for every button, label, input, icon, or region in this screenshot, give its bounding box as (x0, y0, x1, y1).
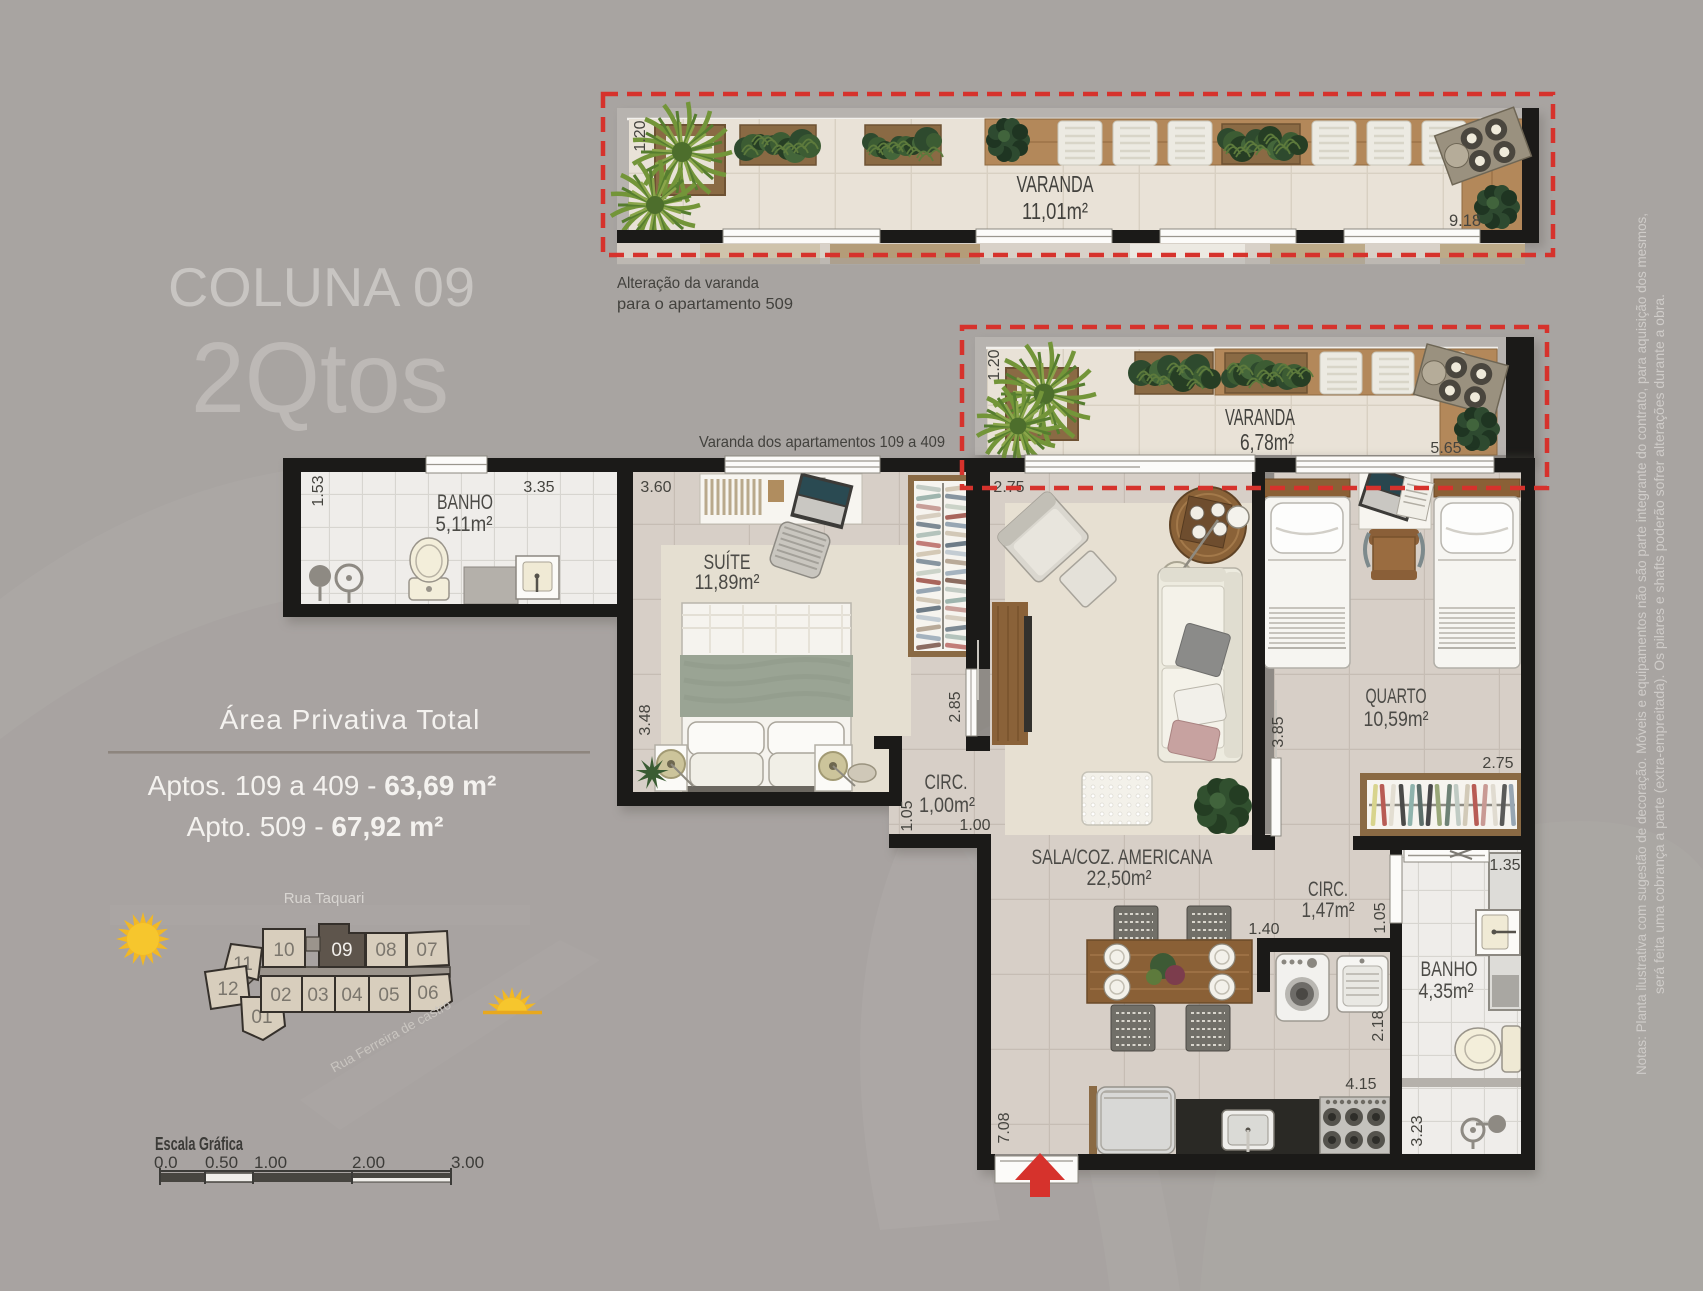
svg-text:Apto. 509 - 67,92 m²: Apto. 509 - 67,92 m² (187, 811, 444, 842)
svg-text:1.05: 1.05 (1372, 902, 1389, 933)
svg-text:1.05: 1.05 (899, 800, 916, 831)
svg-text:Alteração da varanda: Alteração da varanda (617, 275, 759, 292)
svg-text:4.15: 4.15 (1345, 1076, 1376, 1093)
svg-text:3.00: 3.00 (451, 1153, 484, 1172)
svg-text:Rua Taquari: Rua Taquari (284, 890, 365, 907)
svg-text:09: 09 (331, 940, 352, 961)
svg-text:1.35: 1.35 (1489, 857, 1520, 874)
svg-text:QUARTO: QUARTO (1366, 685, 1427, 708)
svg-text:07: 07 (416, 940, 437, 961)
svg-text:SALA/COZ. AMERICANA: SALA/COZ. AMERICANA (1032, 846, 1213, 869)
svg-text:1.20: 1.20 (632, 120, 649, 151)
svg-text:3.48: 3.48 (637, 704, 654, 735)
svg-text:0.0: 0.0 (154, 1153, 178, 1172)
svg-text:Área Privativa Total: Área Privativa Total (220, 704, 481, 735)
svg-text:1,00m²: 1,00m² (919, 794, 975, 817)
svg-text:2.18: 2.18 (1370, 1010, 1387, 1041)
svg-text:05: 05 (378, 985, 399, 1006)
svg-text:CIRC.: CIRC. (1308, 878, 1348, 901)
svg-text:3.23: 3.23 (1409, 1115, 1426, 1146)
svg-text:BANHO: BANHO (437, 491, 493, 514)
svg-text:VARANDA: VARANDA (1017, 171, 1094, 197)
svg-text:Escala Gráfica: Escala Gráfica (155, 1134, 244, 1154)
svg-text:1.40: 1.40 (1248, 921, 1279, 938)
svg-text:2.85: 2.85 (947, 691, 964, 722)
svg-text:será feita uma cobrança a part: será feita uma cobrança a parte (extra-e… (1651, 294, 1667, 994)
svg-text:6,78m²: 6,78m² (1240, 429, 1294, 455)
svg-text:3.60: 3.60 (640, 479, 671, 496)
svg-text:03: 03 (307, 985, 328, 1006)
svg-text:5.65: 5.65 (1430, 440, 1461, 457)
svg-text:12: 12 (217, 979, 238, 1000)
svg-text:04: 04 (341, 985, 363, 1006)
svg-text:0.50: 0.50 (205, 1153, 238, 1172)
svg-text:COLUNA 09: COLUNA 09 (168, 256, 475, 318)
svg-text:08: 08 (375, 940, 396, 961)
svg-text:3.85: 3.85 (1270, 716, 1287, 747)
svg-text:Notas: Planta ilustrativa com: Notas: Planta ilustrativa com sugestão d… (1633, 213, 1649, 1075)
svg-text:06: 06 (417, 983, 438, 1004)
svg-text:CIRC.: CIRC. (925, 771, 968, 794)
svg-text:02: 02 (270, 985, 291, 1006)
svg-text:4,35m²: 4,35m² (1419, 980, 1474, 1003)
svg-text:Varanda dos apartamentos 109: Varanda dos apartamentos 109 a 409 (699, 434, 945, 451)
svg-text:1.00: 1.00 (959, 817, 990, 834)
svg-text:1.53: 1.53 (310, 475, 327, 506)
svg-text:2.00: 2.00 (352, 1153, 385, 1172)
svg-text:7.08: 7.08 (996, 1112, 1013, 1143)
svg-text:VARANDA: VARANDA (1225, 404, 1295, 430)
svg-text:BANHO: BANHO (1421, 958, 1478, 981)
svg-text:10: 10 (273, 940, 294, 961)
svg-text:3.35: 3.35 (523, 479, 554, 496)
svg-text:1.20: 1.20 (986, 349, 1003, 380)
svg-text:1.00: 1.00 (254, 1153, 287, 1172)
svg-text:para o apartamento 509: para o apartamento 509 (617, 296, 793, 313)
svg-text:2Qtos: 2Qtos (191, 322, 449, 434)
svg-text:Aptos. 109 a 409 - 63,69 m²: Aptos. 109 a 409 - 63,69 m² (148, 770, 497, 801)
svg-text:10,59m²: 10,59m² (1364, 708, 1429, 731)
svg-text:2.75: 2.75 (1482, 755, 1513, 772)
svg-text:1,47m²: 1,47m² (1302, 899, 1355, 922)
svg-text:5,11m²: 5,11m² (436, 513, 493, 536)
svg-text:11,01m²: 11,01m² (1022, 198, 1088, 224)
svg-text:9.18: 9.18 (1449, 212, 1481, 230)
svg-text:11,89m²: 11,89m² (695, 571, 760, 594)
svg-text:22,50m²: 22,50m² (1087, 867, 1152, 890)
